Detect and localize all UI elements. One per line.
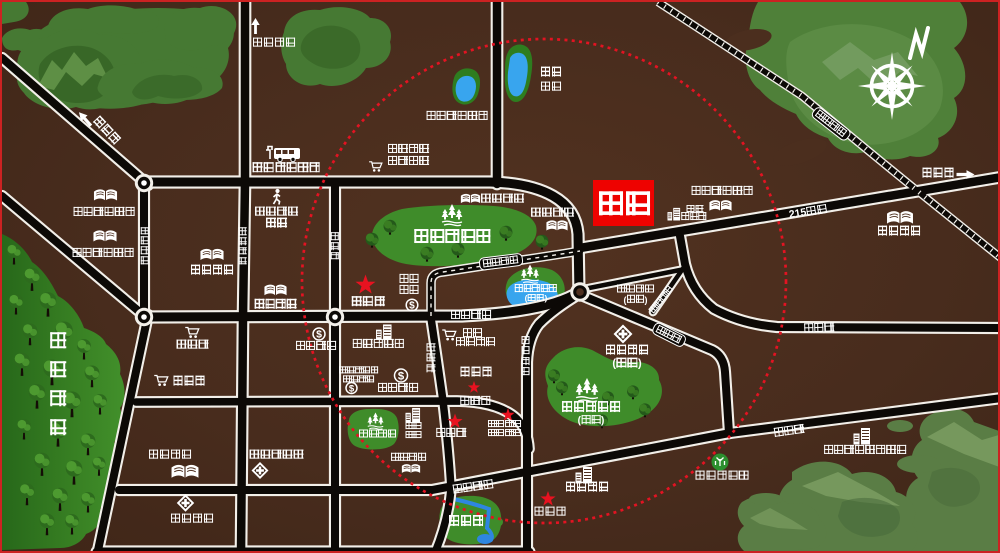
- svg-text:$: $: [409, 301, 415, 312]
- svg-text:$: $: [316, 329, 322, 341]
- svg-text:$: $: [398, 371, 405, 383]
- svg-text:$: $: [349, 383, 355, 394]
